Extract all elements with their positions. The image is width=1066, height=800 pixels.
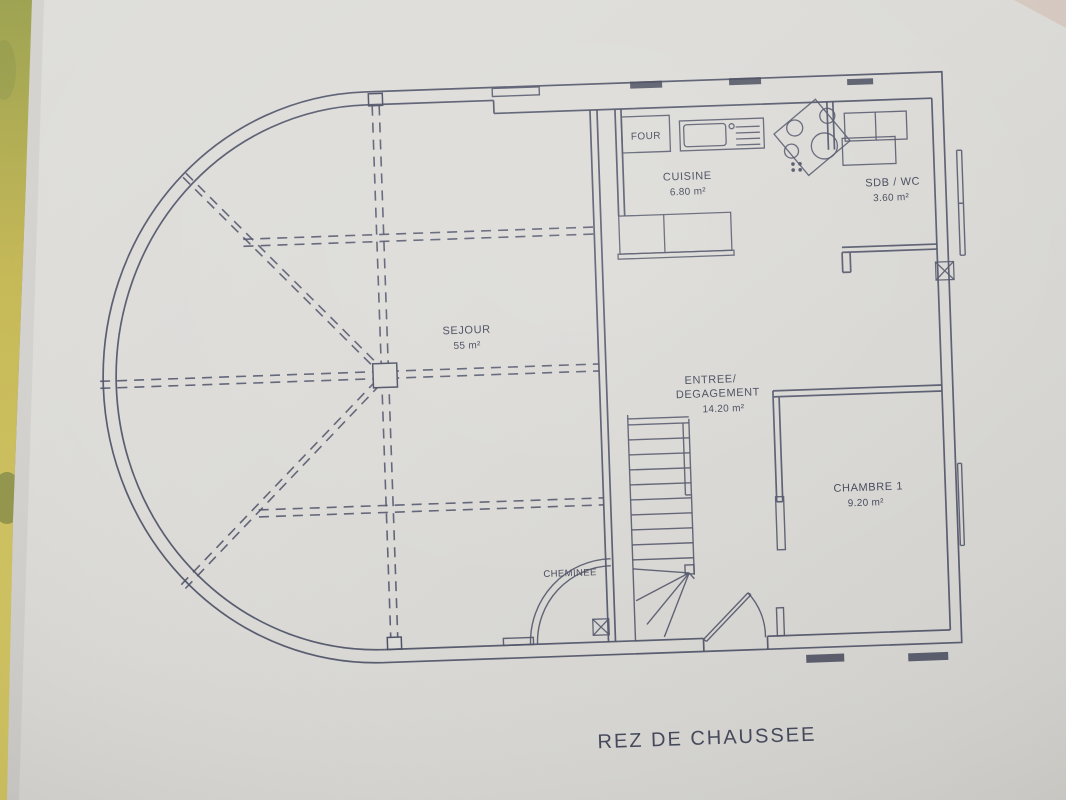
photo-sheen	[0, 0, 1066, 800]
photo-of-floor-plan: FOUR CUISINE 6.80 m² SDB / WC 3.60 m² SE…	[0, 0, 1066, 800]
floor-plan-canvas: FOUR CUISINE 6.80 m² SDB / WC 3.60 m² SE…	[0, 0, 1066, 800]
